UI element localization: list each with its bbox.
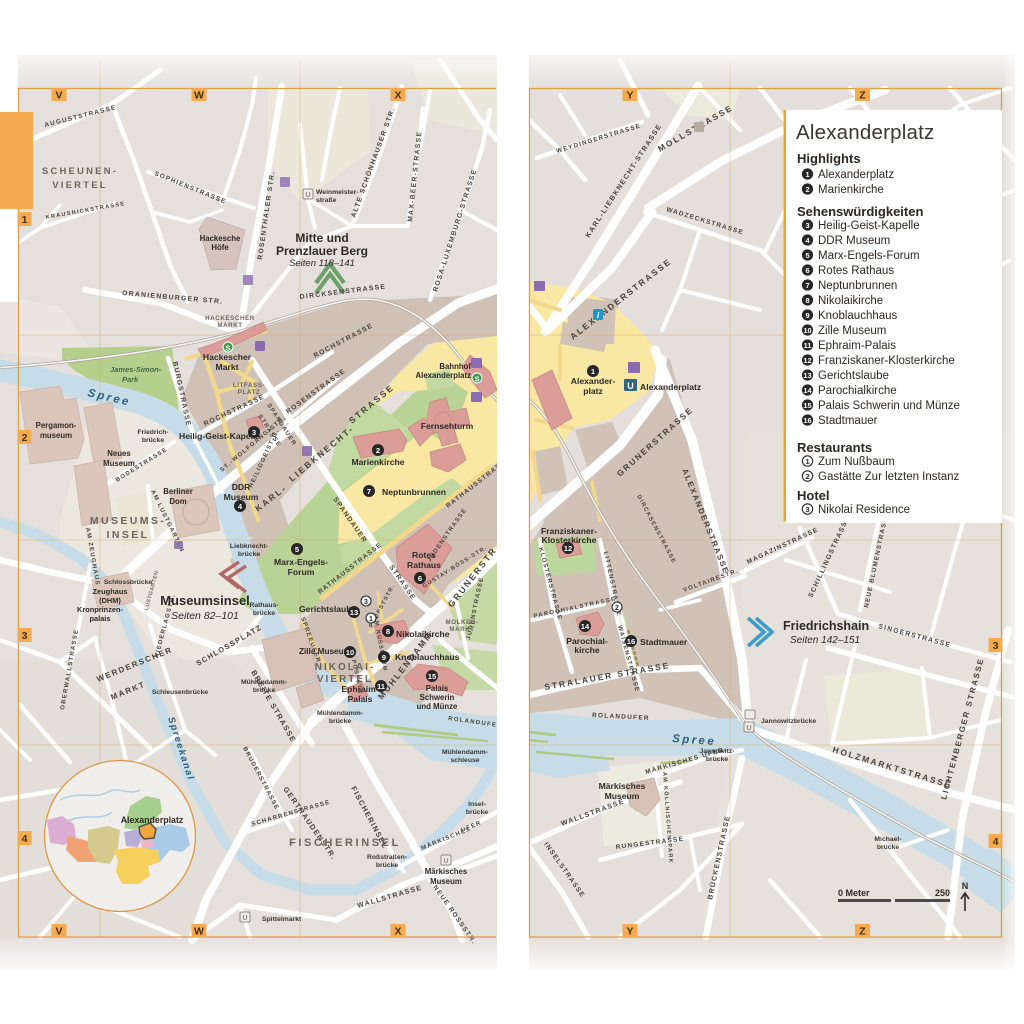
svg-text:3: 3	[252, 428, 256, 437]
svg-text:VIERTEL: VIERTEL	[52, 180, 108, 191]
svg-text:Palais Schwerin und Münze: Palais Schwerin und Münze	[818, 400, 960, 412]
svg-text:Hackesche: Hackesche	[200, 234, 241, 243]
svg-text:Schlossbrücke: Schlossbrücke	[104, 579, 153, 586]
svg-text:Marienkirche: Marienkirche	[818, 184, 884, 196]
svg-text:FISCHERINSEL: FISCHERINSEL	[289, 837, 401, 849]
svg-text:Märkisches: Märkisches	[599, 781, 646, 791]
svg-text:brücke: brücke	[466, 809, 489, 816]
svg-text:platz: platz	[583, 386, 603, 396]
svg-text:Ephraim-: Ephraim-	[341, 684, 378, 694]
svg-text:Gerichtslaube: Gerichtslaube	[299, 604, 357, 614]
svg-text:Rathaus: Rathaus	[407, 560, 441, 570]
svg-text:S: S	[225, 344, 230, 353]
svg-text:MUSEUMS-: MUSEUMS-	[90, 515, 166, 527]
svg-text:Neptunbrunnen: Neptunbrunnen	[382, 487, 446, 497]
svg-text:Spittelmarkt: Spittelmarkt	[262, 916, 302, 923]
svg-text:Stadtmauer: Stadtmauer	[640, 637, 688, 647]
svg-text:Ephraim-Palais: Ephraim-Palais	[818, 340, 896, 352]
svg-text:11: 11	[377, 682, 386, 691]
svg-text:Alexander-: Alexander-	[571, 376, 616, 386]
svg-text:15: 15	[803, 401, 811, 410]
svg-text:2: 2	[22, 432, 28, 444]
svg-text:Z: Z	[859, 90, 866, 102]
svg-text:8: 8	[805, 296, 809, 305]
svg-text:N: N	[962, 881, 969, 891]
svg-text:3: 3	[805, 505, 809, 514]
svg-text:W: W	[194, 90, 204, 102]
svg-text:Bahnhof: Bahnhof	[439, 362, 471, 371]
svg-text:MOLKEN-: MOLKEN-	[445, 619, 478, 626]
svg-text:12: 12	[803, 356, 811, 365]
svg-text:14: 14	[803, 386, 812, 395]
svg-text:13: 13	[803, 371, 811, 380]
svg-text:Höfe: Höfe	[211, 243, 229, 252]
svg-text:Y: Y	[626, 926, 633, 938]
svg-text:U: U	[305, 192, 310, 199]
svg-text:DDR Museum: DDR Museum	[818, 235, 890, 247]
svg-text:X: X	[394, 90, 401, 102]
svg-text:Sehenswürdigkeiten: Sehenswürdigkeiten	[797, 204, 923, 219]
svg-text:kirche: kirche	[574, 645, 600, 655]
svg-text:HACKESCHER: HACKESCHER	[205, 315, 255, 322]
svg-text:straße: straße	[316, 197, 337, 204]
svg-text:brücke: brücke	[877, 844, 900, 851]
svg-text:16: 16	[803, 416, 811, 425]
svg-text:Schwerin: Schwerin	[420, 693, 455, 702]
svg-text:Parochialkirche: Parochialkirche	[818, 385, 897, 397]
svg-text:brücke: brücke	[253, 687, 276, 694]
svg-text:Knoblauchhaus: Knoblauchhaus	[395, 652, 460, 662]
svg-text:Mitte und: Mitte und	[295, 231, 348, 245]
svg-text:Gastätte Zur letzten Instanz: Gastätte Zur letzten Instanz	[818, 471, 960, 483]
svg-text:1: 1	[805, 457, 809, 466]
svg-text:Museum: Museum	[103, 459, 135, 468]
svg-text:Pergamon-: Pergamon-	[36, 421, 77, 430]
svg-text:Schleusenbrücke: Schleusenbrücke	[152, 689, 209, 696]
svg-text:Roßstraßen-: Roßstraßen-	[367, 854, 407, 861]
svg-text:Jannowitzbrücke: Jannowitzbrücke	[761, 718, 816, 725]
svg-text:Friedrichshain: Friedrichshain	[783, 619, 869, 633]
svg-text:SCHEUNEN-: SCHEUNEN-	[42, 166, 118, 177]
svg-text:0 Meter: 0 Meter	[838, 888, 870, 898]
svg-text:Berliner: Berliner	[163, 487, 192, 496]
svg-text:schleuse: schleuse	[450, 757, 479, 764]
svg-text:Zille Museum: Zille Museum	[818, 325, 886, 337]
svg-text:NIKOLAI-: NIKOLAI-	[315, 662, 375, 673]
svg-text:16: 16	[627, 637, 635, 646]
svg-text:X: X	[394, 926, 401, 938]
svg-text:Neues: Neues	[107, 449, 131, 458]
svg-text:brücke: brücke	[329, 718, 352, 725]
svg-text:V: V	[55, 90, 62, 102]
svg-text:9: 9	[382, 653, 386, 662]
svg-text:brücke: brücke	[238, 551, 261, 558]
svg-text:Friedrich-: Friedrich-	[137, 429, 168, 436]
svg-text:1: 1	[805, 170, 809, 179]
svg-text:Franziskaner-Klosterkirche: Franziskaner-Klosterkirche	[818, 355, 955, 367]
svg-text:3: 3	[364, 599, 368, 606]
svg-text:James-Simon-: James-Simon-	[110, 365, 162, 374]
svg-text:Museumsinsel: Museumsinsel	[160, 593, 250, 608]
svg-text:7: 7	[367, 487, 371, 496]
svg-text:Marx-Engels-Forum: Marx-Engels-Forum	[818, 250, 920, 262]
svg-text:Park: Park	[122, 375, 139, 384]
svg-text:brücke: brücke	[376, 862, 399, 869]
svg-text:(DHM): (DHM)	[99, 596, 121, 605]
svg-text:Alexanderplatz: Alexanderplatz	[640, 382, 701, 392]
svg-text:14: 14	[581, 622, 590, 631]
svg-text:3: 3	[22, 630, 28, 642]
svg-text:1: 1	[22, 214, 28, 226]
svg-text:Marienkirche: Marienkirche	[351, 457, 404, 467]
svg-text:Hackescher: Hackescher	[203, 352, 252, 362]
svg-text:brücke: brücke	[142, 437, 165, 444]
svg-text:6: 6	[418, 574, 422, 583]
svg-text:museum: museum	[40, 431, 72, 440]
svg-text:U: U	[746, 725, 751, 732]
svg-text:250: 250	[935, 888, 950, 898]
svg-text:Heilig-Geist-Kapelle: Heilig-Geist-Kapelle	[818, 220, 920, 232]
svg-text:U: U	[242, 915, 247, 922]
svg-text:Alexanderplatz: Alexanderplatz	[818, 169, 894, 181]
svg-text:Hotel: Hotel	[797, 488, 830, 503]
svg-text:Zeughaus: Zeughaus	[93, 587, 128, 596]
svg-text:Mühlendamm-: Mühlendamm-	[241, 679, 287, 686]
svg-text:Seiten 142–151: Seiten 142–151	[790, 635, 860, 646]
svg-text:LITFASS-: LITFASS-	[233, 382, 265, 389]
svg-text:palais: palais	[90, 614, 111, 623]
svg-text:Alexanderplatz: Alexanderplatz	[416, 371, 472, 380]
svg-text:Alexanderplatz: Alexanderplatz	[796, 121, 934, 144]
svg-text:Forum: Forum	[288, 567, 315, 577]
svg-text:Jannowitz-: Jannowitz-	[699, 748, 734, 755]
svg-text:Z: Z	[859, 926, 866, 938]
svg-text:MARKT: MARKT	[449, 626, 474, 633]
svg-text:Michael-: Michael-	[874, 836, 901, 843]
svg-text:DDR: DDR	[232, 482, 251, 492]
svg-text:PLATZ: PLATZ	[238, 389, 260, 396]
svg-text:10: 10	[346, 648, 354, 657]
svg-text:9: 9	[805, 311, 809, 320]
svg-text:3: 3	[993, 640, 999, 652]
svg-text:brücke: brücke	[706, 756, 729, 763]
svg-text:Rotes Rathaus: Rotes Rathaus	[818, 265, 894, 277]
svg-text:13: 13	[350, 608, 358, 617]
svg-text:4: 4	[22, 833, 28, 845]
svg-text:Y: Y	[626, 90, 633, 102]
svg-text:2: 2	[805, 185, 809, 194]
svg-text:Seiten 82–101: Seiten 82–101	[171, 610, 239, 622]
svg-text:Marx-Engels-: Marx-Engels-	[274, 557, 328, 567]
svg-text:7: 7	[805, 281, 809, 290]
svg-text:Rotes: Rotes	[412, 550, 436, 560]
svg-text:S: S	[474, 375, 479, 384]
svg-text:Seiten 118–141: Seiten 118–141	[289, 258, 355, 269]
svg-text:3: 3	[805, 221, 809, 230]
svg-text:Mühlendamm-: Mühlendamm-	[442, 749, 488, 756]
svg-text:Museum: Museum	[430, 877, 462, 886]
svg-text:Zum Nußbaum: Zum Nußbaum	[818, 456, 895, 468]
svg-text:INSEL: INSEL	[107, 529, 150, 541]
svg-text:Weinmeister-: Weinmeister-	[316, 189, 359, 196]
svg-text:Zille Museum: Zille Museum	[299, 647, 351, 656]
svg-text:Mühlendamm-: Mühlendamm-	[317, 710, 363, 717]
svg-text:1: 1	[369, 616, 373, 623]
svg-text:2: 2	[376, 446, 380, 455]
svg-text:Märkisches: Märkisches	[425, 867, 468, 876]
svg-text:Dom: Dom	[169, 497, 186, 506]
svg-text:W: W	[194, 926, 204, 938]
svg-text:und Münze: und Münze	[417, 702, 458, 711]
svg-text:Nikolaikirche: Nikolaikirche	[818, 295, 883, 307]
svg-text:4: 4	[993, 836, 999, 848]
svg-text:MARKT: MARKT	[217, 322, 242, 329]
svg-text:2: 2	[805, 472, 809, 481]
svg-text:10: 10	[803, 326, 811, 335]
svg-text:5: 5	[805, 251, 809, 260]
svg-text:U: U	[627, 381, 634, 391]
svg-text:Highlights: Highlights	[797, 151, 861, 166]
svg-text:12: 12	[564, 544, 572, 553]
svg-text:Nikolaikirche: Nikolaikirche	[396, 629, 450, 639]
svg-text:Museum: Museum	[605, 791, 640, 801]
svg-text:Rathaus-: Rathaus-	[249, 602, 278, 609]
svg-text:Alexanderplatz: Alexanderplatz	[121, 815, 184, 825]
svg-text:Prenzlauer Berg: Prenzlauer Berg	[276, 244, 368, 258]
svg-text:6: 6	[805, 266, 809, 275]
svg-text:U: U	[443, 858, 448, 865]
svg-text:Kronprinzen-: Kronprinzen-	[77, 605, 124, 614]
svg-text:Knoblauchhaus: Knoblauchhaus	[818, 310, 898, 322]
svg-text:11: 11	[804, 341, 812, 350]
svg-text:Fernsehturm: Fernsehturm	[421, 421, 474, 431]
svg-text:Gerichtslaube: Gerichtslaube	[818, 370, 889, 382]
svg-text:8: 8	[386, 627, 390, 636]
svg-text:15: 15	[428, 672, 437, 681]
svg-text:2: 2	[615, 605, 619, 612]
svg-text:Palais: Palais	[426, 684, 449, 693]
svg-text:Stadtmauer: Stadtmauer	[818, 415, 878, 427]
svg-text:Insel-: Insel-	[468, 801, 486, 808]
svg-text:Neptunbrunnen: Neptunbrunnen	[818, 280, 897, 292]
svg-text:Markt: Markt	[216, 362, 239, 372]
svg-text:brücke: brücke	[253, 610, 276, 617]
svg-text:Restaurants: Restaurants	[797, 440, 872, 455]
svg-text:V: V	[55, 926, 62, 938]
svg-text:Nikolai Residence: Nikolai Residence	[818, 504, 910, 516]
svg-text:Palais: Palais	[348, 694, 373, 704]
svg-text:Liebknecht-: Liebknecht-	[230, 543, 268, 550]
